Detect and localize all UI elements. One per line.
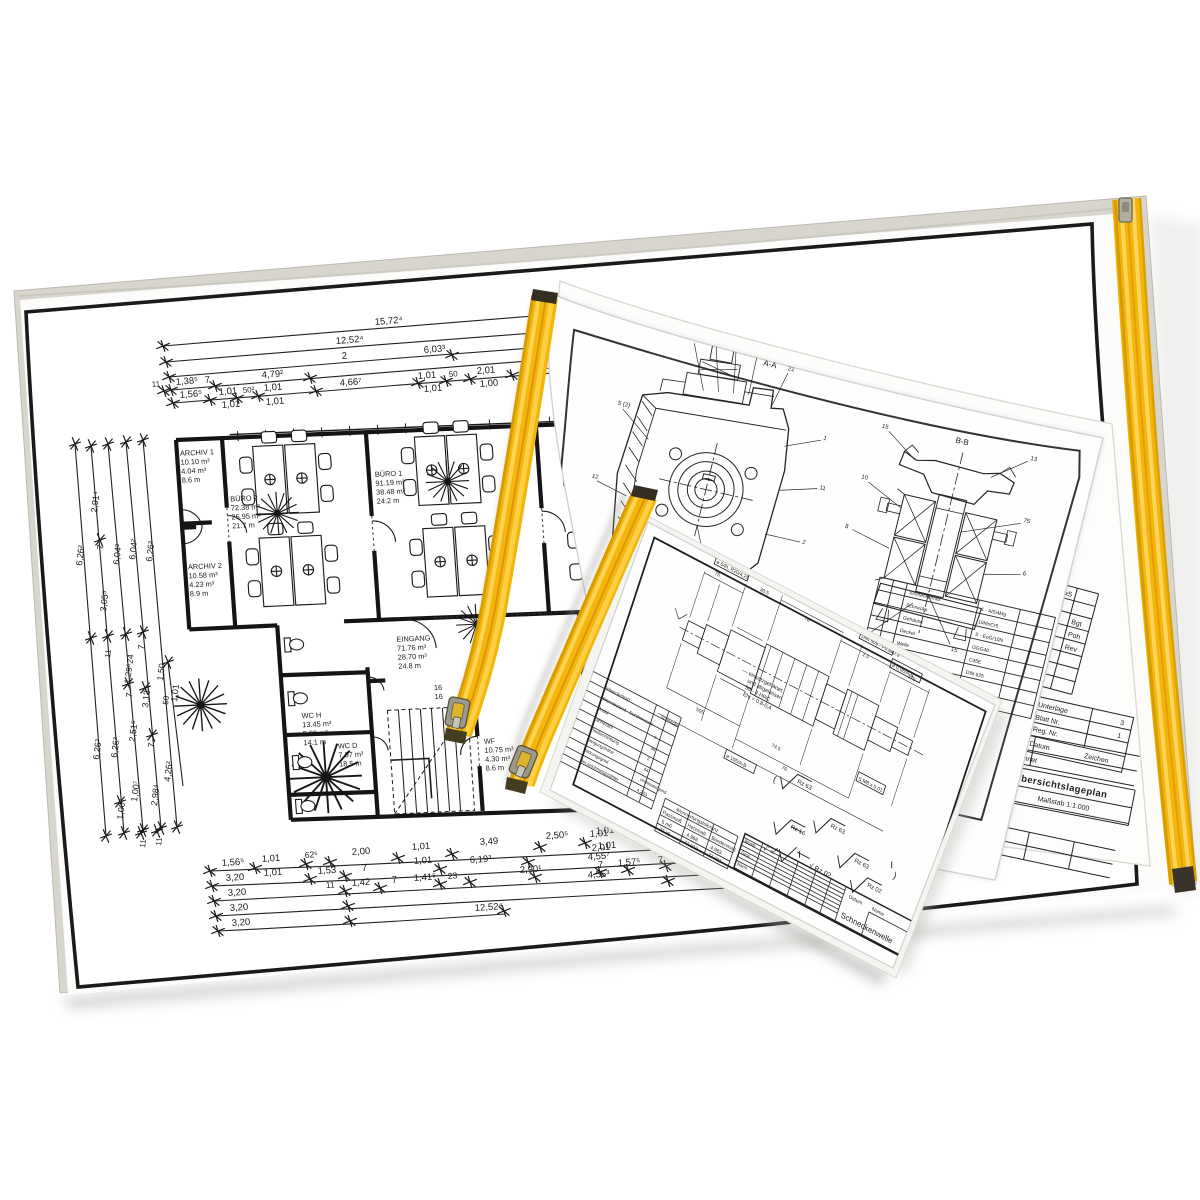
svg-text:15,72⁴: 15,72⁴ xyxy=(374,315,403,328)
svg-text:4,79²: 4,79² xyxy=(261,368,283,381)
svg-text:1,00: 1,00 xyxy=(479,378,498,390)
svg-text:24.2 m: 24.2 m xyxy=(376,496,399,506)
svg-text:12,52⁴: 12,52⁴ xyxy=(474,901,503,914)
svg-text:21.7 m: 21.7 m xyxy=(232,520,255,530)
svg-text:6,19³: 6,19³ xyxy=(469,854,491,866)
svg-text:12,52⁴: 12,52⁴ xyxy=(335,334,364,347)
svg-text:1,01: 1,01 xyxy=(169,684,181,703)
svg-text:16: 16 xyxy=(434,692,443,701)
svg-text:2,01: 2,01 xyxy=(476,365,495,377)
svg-text:7: 7 xyxy=(597,860,603,871)
svg-text:1,01: 1,01 xyxy=(263,867,282,879)
svg-text:1,01: 1,01 xyxy=(411,841,430,853)
svg-text:50²: 50² xyxy=(242,385,255,395)
svg-text:1,01: 1,01 xyxy=(413,855,432,867)
svg-text:1,50: 1,50 xyxy=(155,663,167,682)
svg-text:11: 11 xyxy=(138,838,148,848)
svg-text:2,50⁵: 2,50⁵ xyxy=(545,829,568,842)
svg-text:1,56⁵: 1,56⁵ xyxy=(221,856,244,869)
svg-text:1,01: 1,01 xyxy=(261,853,280,865)
svg-text:1,38⁵: 1,38⁵ xyxy=(175,375,198,388)
svg-text:2,00: 2,00 xyxy=(351,846,370,858)
svg-text:16: 16 xyxy=(434,683,443,692)
svg-text:11: 11 xyxy=(325,879,335,890)
svg-text:1,57⁵: 1,57⁵ xyxy=(617,856,640,869)
svg-text:8.6 m: 8.6 m xyxy=(485,763,504,773)
svg-text:3,20: 3,20 xyxy=(231,917,250,929)
svg-text:2,90¹: 2,90¹ xyxy=(519,864,541,876)
svg-text:1,01: 1,01 xyxy=(417,370,436,382)
svg-text:3,20: 3,20 xyxy=(227,887,246,899)
svg-text:1,01: 1,01 xyxy=(265,396,284,408)
svg-text:1,01: 1,01 xyxy=(423,383,442,395)
svg-text:1,42: 1,42 xyxy=(351,877,370,889)
svg-text:7: 7 xyxy=(361,863,367,874)
svg-text:11: 11 xyxy=(103,648,113,658)
svg-text:62⁵: 62⁵ xyxy=(304,849,318,860)
svg-text:4,66⁷: 4,66⁷ xyxy=(339,376,362,389)
svg-text:1,53: 1,53 xyxy=(317,865,336,877)
svg-text:2: 2 xyxy=(341,351,347,362)
svg-text:3,20: 3,20 xyxy=(225,872,244,884)
svg-text:3,20: 3,20 xyxy=(229,902,248,914)
svg-text:6,03³: 6,03³ xyxy=(423,343,445,356)
svg-text:1,01: 1,01 xyxy=(221,399,240,411)
svg-text:7: 7 xyxy=(391,875,397,886)
svg-text:50: 50 xyxy=(448,369,458,379)
svg-text:8.6 m: 8.6 m xyxy=(182,475,201,485)
svg-text:7: 7 xyxy=(204,375,210,386)
svg-text:11: 11 xyxy=(154,836,164,846)
svg-text:8.9 m: 8.9 m xyxy=(189,589,208,599)
svg-text:14.1 m: 14.1 m xyxy=(303,737,326,747)
svg-text:11: 11 xyxy=(151,379,161,389)
svg-text:1,56⁵: 1,56⁵ xyxy=(179,388,202,401)
svg-text:3,49: 3,49 xyxy=(479,836,498,848)
svg-text:24.8 m: 24.8 m xyxy=(398,661,421,671)
svg-text:1,01: 1,01 xyxy=(218,386,237,398)
svg-text:23: 23 xyxy=(447,870,457,881)
svg-text:1,01: 1,01 xyxy=(263,382,282,394)
svg-text:18.5 m: 18.5 m xyxy=(339,759,362,769)
svg-text:1,41⁵: 1,41⁵ xyxy=(413,871,436,884)
